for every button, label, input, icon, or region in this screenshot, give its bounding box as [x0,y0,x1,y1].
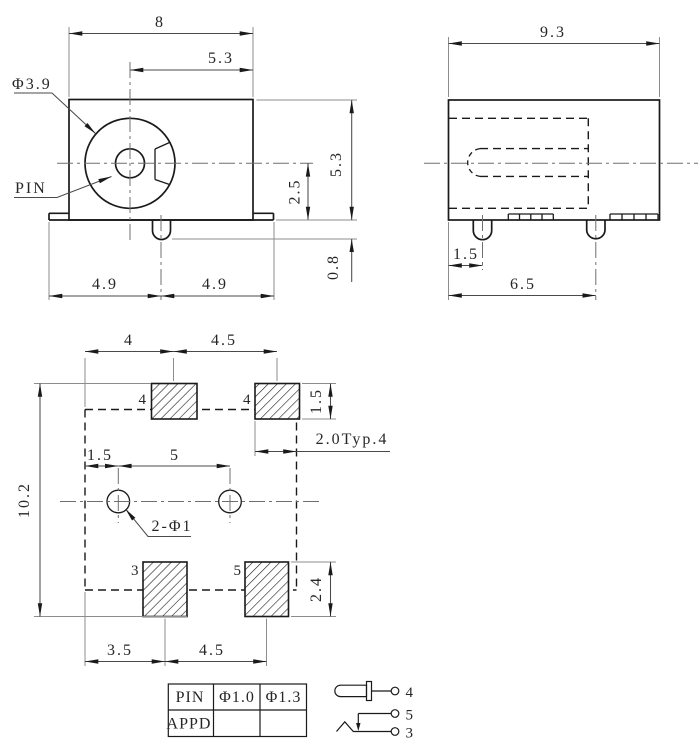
dim-text-pad-top-pitch: 4.5 [211,332,237,349]
dim-front-halves: 4.9 4.9 [49,222,274,300]
dim-text-hole-pitch: 5 [170,447,180,464]
dim-side-leg-span: 6.5 [449,276,596,296]
pad-label-top-right: 4 [243,392,252,408]
table-cell-dia-large: Φ1.3 [266,689,302,706]
dim-front-center-to-right: 5.3 [130,50,253,70]
callout-text-holes: 2-Φ1 [151,518,192,535]
dim-bottom-holes: 1.5 5 [85,447,230,466]
callout-text-pin: PIN [15,180,47,197]
dim-text-front-height: 5.3 [328,151,345,177]
callout-barrel-diameter: Φ3.9 [12,76,96,134]
pad-label-bottom-right: 5 [234,563,243,579]
leader-arrow-icon [126,509,136,521]
terminal-circle-contact [391,710,399,718]
bottom-view: 4 4 3 5 2-Φ1 4 4.5 [16,332,390,666]
dim-text-pad-width-typ: 2.0Typ.4 [316,431,389,448]
dim-front-overall-height: 5.3 [257,100,358,220]
side-view: 9.3 1.5 6.5 [424,24,698,300]
switch-contact [337,714,392,732]
leader-arrow-icon [85,123,96,134]
dim-bottom-pad-width-typ: 2.0Typ.4 [255,421,390,456]
pad-bottom-left [143,562,187,617]
pad-label-bottom-left: 3 [131,563,140,579]
callout-holes: 2-Φ1 [126,509,193,537]
table-cell-appd: APPD [167,716,212,733]
dim-front-center-height: 2.5 [287,163,309,220]
smt-pads: 4 4 3 5 [131,384,300,617]
terminal-circle-tip [391,687,399,695]
dim-side-leg-offset: 1.5 [449,222,483,300]
side-body-outline [449,100,660,240]
dim-text-side-depth: 9.3 [540,24,566,41]
dim-text-leg-protrusion: 0.8 [325,254,342,280]
terminal-label-sleeve: 3 [406,726,415,742]
plug-symbol [335,682,391,701]
terminal-circle-sleeve [391,728,399,736]
side-centerlines [424,163,698,300]
terminal-label-contact: 5 [406,708,415,724]
spec-table: PIN Φ1.0 Φ1.3 APPD [167,684,307,737]
leader-arrow-icon [98,177,111,184]
pad-top-left [152,384,198,420]
callout-text-barrel-diameter: Φ3.9 [12,76,52,93]
dim-bottom-pad-bottom-height: 2.4 [291,562,336,617]
dim-text-pad-top-height: 1.5 [308,388,325,414]
terminal-label-tip: 4 [406,685,415,701]
dim-text-pad-top-offset: 4 [124,332,134,349]
dim-text-center-to-right: 5.3 [208,50,234,67]
dim-text-pad-bottom-offset: 3.5 [107,642,133,659]
dim-text-right-half: 4.9 [202,276,228,293]
contact-arrow-icon [356,723,360,731]
dim-text-center-height: 2.5 [287,179,304,205]
dim-text-hole-offset: 1.5 [87,447,113,464]
pad-top-right [255,384,300,420]
dim-side-overall-depth: 9.3 [449,24,660,97]
dim-text-front-width: 8 [155,14,165,31]
front-view: 8 5.3 Φ3.9 PIN 2.5 5.3 [12,14,357,300]
pad-label-top-left: 4 [139,392,148,408]
dim-text-pad-bottom-height: 2.4 [308,576,325,602]
front-centerlines [57,62,313,300]
dim-text-pad-bottom-pitch: 4.5 [199,642,225,659]
table-cell-pin: PIN [176,689,205,706]
through-holes [60,468,323,523]
pad-bottom-right [245,562,289,617]
table-cell-dia-small: Φ1.0 [219,689,255,706]
dim-text-left-half: 4.9 [92,276,118,293]
drawing-sheet: 8 5.3 Φ3.9 PIN 2.5 5.3 [0,0,700,753]
dim-text-overall-depth: 10.2 [16,482,33,518]
schematic-symbol: 4 5 3 [335,682,414,742]
dim-text-leg-offset: 1.5 [453,246,479,263]
dc-jack-technical-drawing: 8 5.3 Φ3.9 PIN 2.5 5.3 [0,0,700,753]
dim-text-leg-span: 6.5 [510,276,536,293]
dim-bottom-pad-top-height: 1.5 [302,384,336,420]
dim-front-leg-protrusion: 0.8 [172,239,357,282]
